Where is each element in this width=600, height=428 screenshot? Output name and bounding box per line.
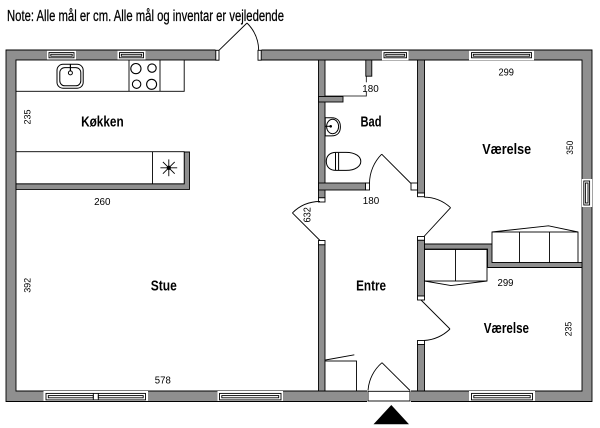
svg-text:235: 235 <box>563 322 574 337</box>
svg-text:180: 180 <box>362 84 379 95</box>
svg-text:Bad: Bad <box>361 115 382 131</box>
svg-text:632: 632 <box>303 207 314 223</box>
svg-text:Entre: Entre <box>356 278 386 294</box>
svg-text:392: 392 <box>23 278 34 293</box>
svg-text:Værelse: Værelse <box>484 321 529 337</box>
svg-text:299: 299 <box>498 278 514 289</box>
svg-text:Værelse: Værelse <box>482 142 531 158</box>
svg-text:Køkken: Køkken <box>81 115 124 131</box>
svg-text:Stue: Stue <box>151 278 177 294</box>
svg-text:260: 260 <box>94 197 111 208</box>
svg-text:Note: Alle mål er cm. Alle mål: Note: Alle mål er cm. Alle mål og invent… <box>7 8 284 25</box>
svg-text:180: 180 <box>363 196 380 207</box>
svg-text:578: 578 <box>155 376 171 387</box>
svg-text:235: 235 <box>22 110 33 125</box>
svg-text:299: 299 <box>498 68 514 79</box>
svg-text:350: 350 <box>565 141 576 155</box>
